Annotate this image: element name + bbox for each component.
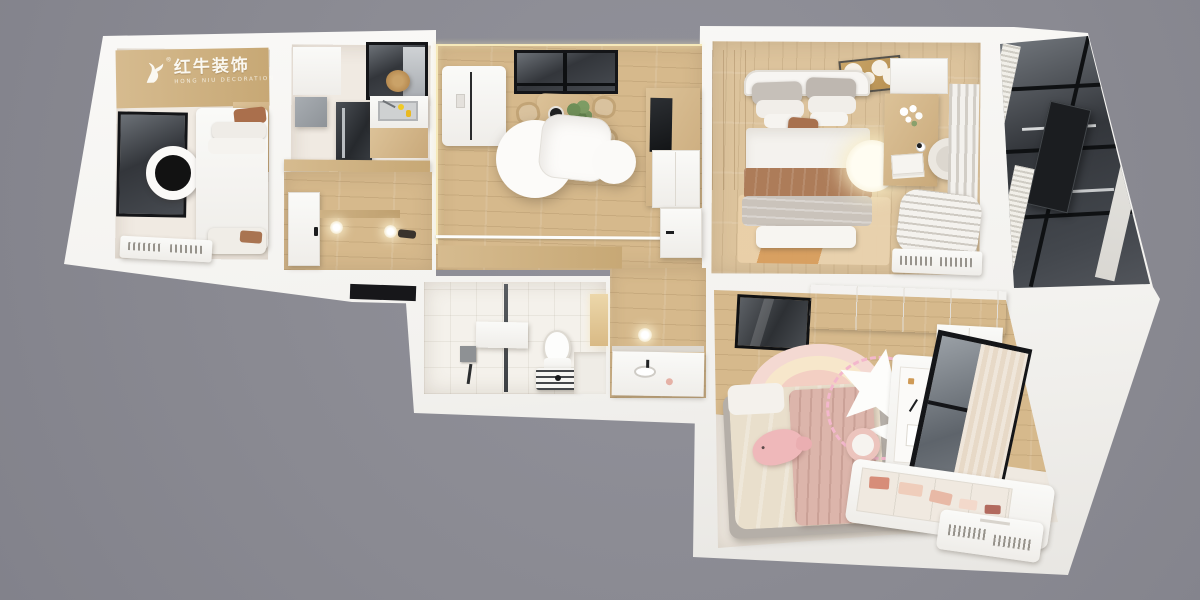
lower-cabinet — [652, 150, 700, 208]
appliance-column — [336, 102, 372, 164]
radiator — [892, 248, 983, 275]
vanity-desk — [883, 94, 939, 187]
rattan-pendant-lamp — [386, 70, 410, 92]
entry-wall-shelf — [320, 210, 400, 218]
master-wardrobe — [712, 50, 746, 190]
vanity-faucet — [646, 360, 649, 368]
door-handle — [314, 227, 318, 236]
ceiling-lamp — [384, 225, 397, 238]
book-stack — [891, 153, 924, 175]
dish-soap-bottle — [406, 110, 411, 117]
door-handle — [666, 231, 674, 234]
vanity-counter — [612, 351, 705, 397]
wall-lamp — [638, 328, 652, 342]
overhead-cabinet — [890, 58, 948, 94]
wood-counter — [370, 128, 428, 158]
white-pillow — [208, 138, 266, 154]
corridor-door — [660, 208, 702, 258]
cove-light-line — [436, 44, 702, 46]
half-wall-shelf — [284, 159, 430, 172]
sink-counter — [370, 96, 428, 128]
round-ceiling-lamp — [146, 146, 200, 200]
lit-niche — [590, 294, 608, 346]
registered-mark: ® — [165, 56, 171, 63]
flower-vase — [896, 104, 926, 131]
kids-pillow — [727, 383, 784, 416]
cloud-pendant-lamp — [496, 116, 646, 216]
entry-door-gap — [350, 284, 416, 301]
television — [650, 98, 673, 152]
floorplan-render: ® 红牛装饰 HONG NIU DECORATION — [0, 0, 1200, 600]
white-pillow — [212, 122, 266, 139]
pink-cup — [666, 378, 673, 385]
foot-bench — [756, 226, 856, 248]
vanity-basin — [634, 366, 656, 378]
bathroom-step — [574, 352, 606, 394]
shower-screen-panel — [476, 322, 528, 349]
brand-watermark: ® 红牛装饰 HONG NIU DECORATION — [142, 56, 275, 87]
mirror-wardrobe — [735, 294, 812, 352]
cove-light-line — [436, 44, 438, 244]
radiator — [119, 236, 212, 263]
living-window — [514, 50, 618, 94]
gray-folded-blanket — [742, 196, 872, 226]
entry-interior-door — [288, 192, 320, 266]
radiator-knob — [555, 375, 561, 381]
brown-cushion — [240, 230, 263, 244]
brand-name-cn: 红牛装饰 — [174, 56, 275, 76]
bull-logo-icon: ® — [142, 59, 169, 86]
bathroom-bulkhead — [438, 245, 622, 268]
ceiling-lamp — [330, 221, 343, 234]
wall-cabinet — [295, 97, 327, 127]
shower-mixer — [460, 346, 476, 362]
dish-soap-bottle — [398, 104, 404, 110]
tall-cabinet — [293, 47, 341, 95]
